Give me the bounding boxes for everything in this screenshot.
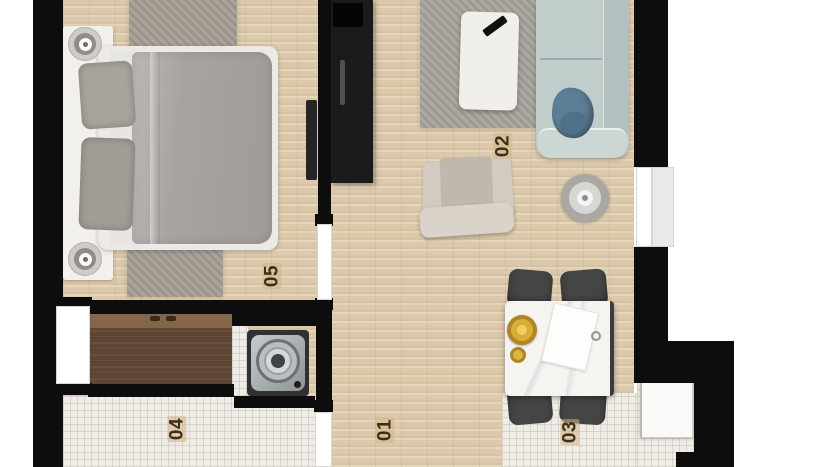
wall-exterior-right-lower [694, 341, 734, 467]
room-label-02: 02 [493, 133, 512, 159]
wall-washer-niche-bottom [234, 396, 315, 408]
entry-door [56, 306, 90, 384]
bed-duvet-fold [150, 52, 160, 244]
balcony-door [636, 167, 652, 247]
bed-pillow [78, 137, 135, 231]
door-jamb [314, 400, 333, 412]
armchair-seat-cushion [419, 202, 515, 238]
sofa-back-cushion [603, 0, 629, 140]
floor-plan: 01 02 03 04 05 [0, 0, 835, 467]
room-label-04: 04 [167, 416, 186, 442]
washer-knob [294, 381, 301, 388]
plate-center [517, 325, 527, 335]
lamp-center [582, 195, 588, 201]
closet-handle [150, 316, 160, 321]
closet-handle [166, 316, 176, 321]
plate-inner [513, 350, 523, 360]
bed-pillow [78, 60, 136, 130]
fridge [640, 382, 693, 438]
room-label-03: 03 [560, 419, 579, 445]
washer-drum-center [271, 354, 285, 368]
gold-plate-small [510, 347, 526, 363]
nightstand-lamp-icon [68, 242, 102, 276]
sofa-seat-seam [540, 58, 602, 60]
tv-icon [333, 3, 363, 27]
door-jamb [54, 383, 92, 395]
dining-table-edge [610, 301, 614, 396]
bedroom-rug-top [129, 0, 237, 52]
napkin-ring [591, 331, 601, 341]
wall-exterior-left [33, 0, 63, 467]
gold-plate-large [507, 315, 537, 345]
wall-bedroom-living-lower [316, 298, 332, 412]
bedroom-rug-bottom [127, 247, 223, 297]
balcony-door-outer-panel [652, 167, 674, 247]
sofa [536, 0, 629, 158]
room-label-05: 05 [262, 263, 281, 289]
bedroom-door [317, 224, 332, 300]
bedroom-tv [306, 100, 317, 180]
bathroom-door [315, 412, 332, 467]
wall-exterior-right-upper [634, 0, 668, 167]
washing-machine [247, 330, 309, 396]
room-label-01: 01 [375, 417, 394, 443]
wall-hall-south [88, 384, 234, 397]
media-unit-handle [340, 60, 345, 105]
lamp-center [83, 257, 88, 262]
floor-lamp-icon [561, 174, 609, 222]
washer-niche-floor [232, 326, 248, 396]
armchair [420, 155, 515, 240]
hall-closet-top-band [90, 314, 232, 328]
wall-washer-niche-top [232, 308, 318, 326]
tv-media-unit [330, 0, 373, 183]
wall-bottom-step [676, 452, 696, 467]
wall-bedroom-living-upper [318, 0, 331, 224]
nightstand-lamp-icon [68, 27, 102, 61]
lamp-center [83, 42, 88, 47]
wall-exterior-right-mid [634, 247, 668, 347]
